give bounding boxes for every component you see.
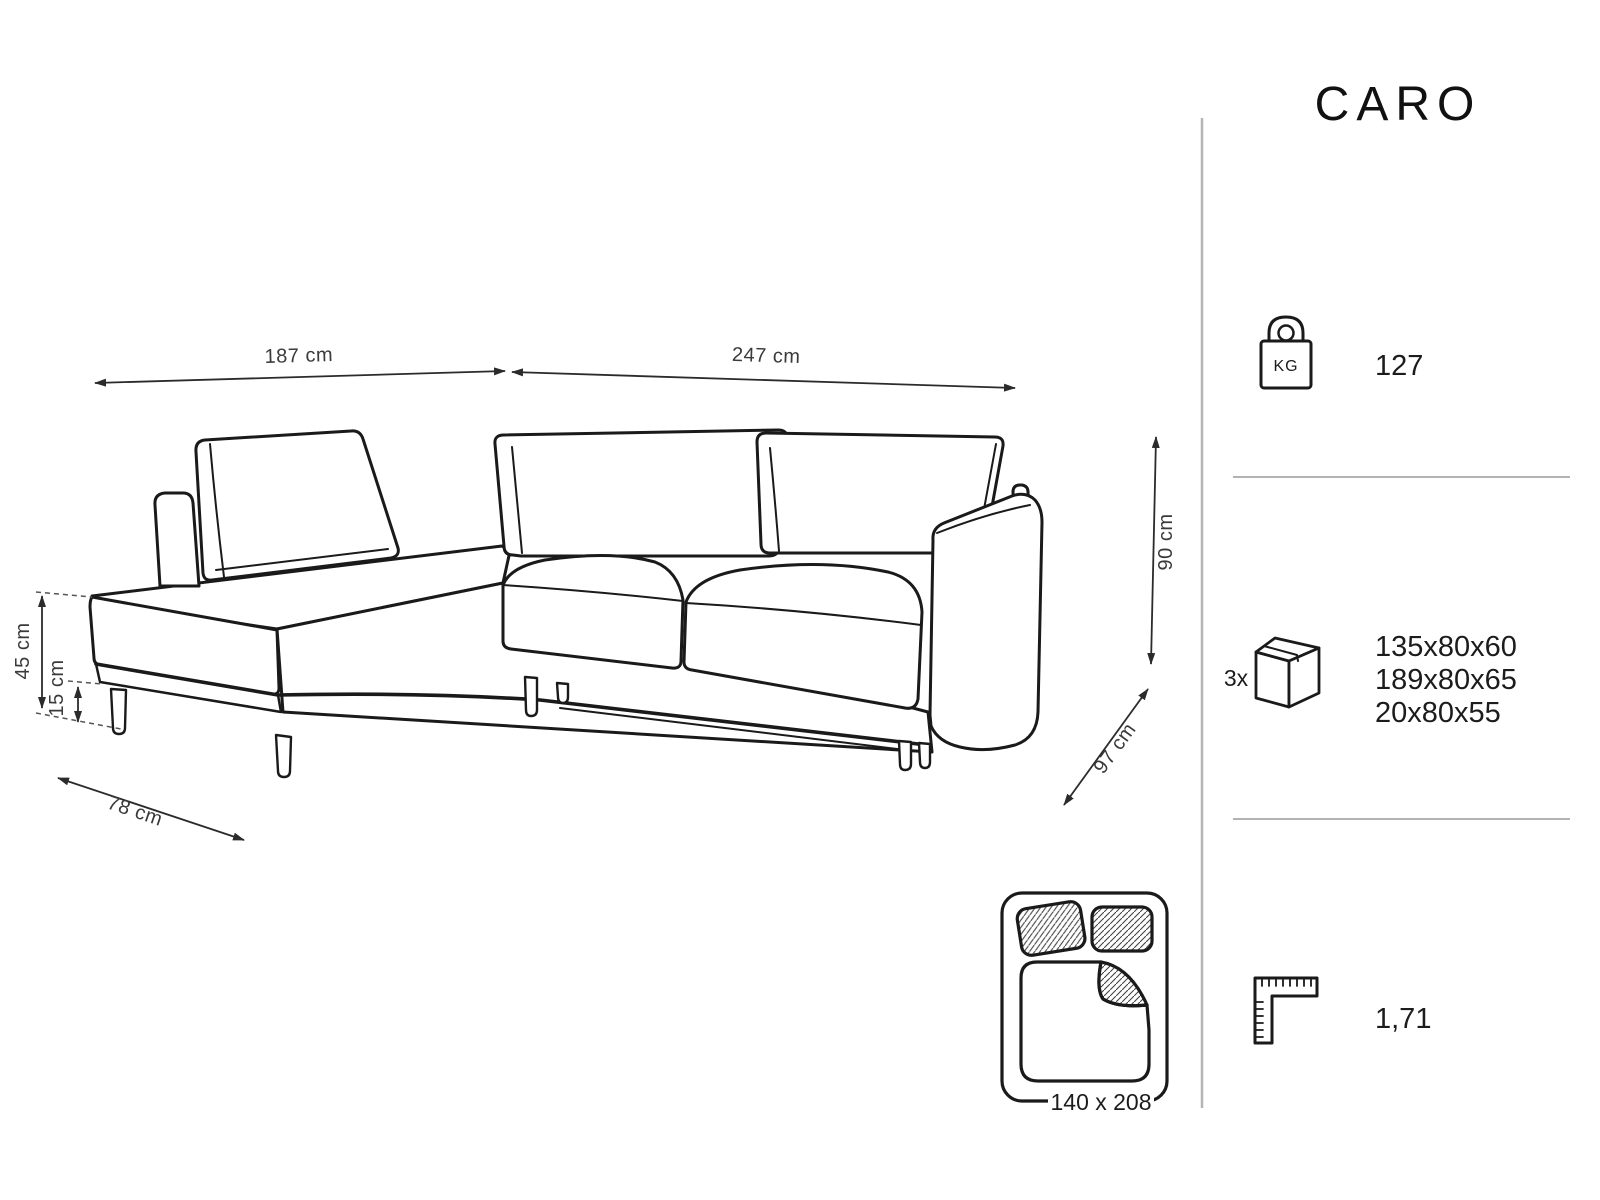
bed-size-icon (1002, 893, 1167, 1116)
back-cushion (196, 431, 398, 580)
volume-value: 1,71 (1375, 1003, 1431, 1035)
sofa-leg (111, 689, 126, 734)
sofa-leg (525, 677, 537, 716)
diagram-canvas: 187 cm 247 cm 90 cm 97 cm 45 cm 15 cm 78… (0, 0, 1600, 1200)
dim-label-seat-height: 45 cm (12, 623, 34, 680)
sofa-leg (276, 735, 291, 777)
sofa-line-drawing (90, 430, 1042, 777)
dashed-guide (36, 592, 92, 597)
sofa-leg (557, 683, 568, 703)
box-dimensions-line-2: 189x80x65 (1375, 664, 1517, 696)
armrest (930, 494, 1042, 749)
seat-cushion (503, 555, 683, 668)
bed-pillow (1016, 900, 1087, 956)
bed-pillow (1092, 907, 1152, 951)
product-title: CARO (1315, 78, 1482, 131)
box-count: 3x (1224, 665, 1249, 691)
box-icon (1256, 638, 1319, 707)
dim-label-chaise-depth: 78 cm (104, 792, 165, 831)
bed-size-label: 140 x 208 (1050, 1089, 1151, 1115)
weight-value: 127 (1375, 350, 1423, 382)
ruler-outline (1255, 978, 1317, 1043)
dim-arrow-187 (95, 371, 505, 383)
dim-arrow-247 (512, 372, 1015, 388)
kg-weight-handle-hole (1279, 326, 1294, 341)
kg-weight-icon (1261, 317, 1311, 388)
back-rail (155, 493, 199, 586)
box-dimensions-line-3: 20x80x55 (1375, 697, 1501, 729)
box-dimensions-line-1: 135x80x60 (1375, 631, 1517, 663)
dim-label-height: 90 cm (1155, 514, 1177, 571)
dashed-guide (68, 681, 102, 684)
dim-label-back-left: 187 cm (264, 344, 333, 368)
ruler-icon (1255, 978, 1317, 1043)
dim-label-depth: 97 cm (1090, 719, 1141, 778)
product-dimension-sheet: 187 cm 247 cm 90 cm 97 cm 45 cm 15 cm 78… (0, 0, 1600, 1200)
sofa-leg (919, 743, 930, 768)
dim-label-back-right: 247 cm (732, 344, 801, 368)
back-cushion (495, 430, 787, 556)
sofa-leg (899, 741, 911, 770)
kg-unit-label: KG (1273, 358, 1298, 375)
dim-label-leg-height: 15 cm (46, 660, 68, 717)
